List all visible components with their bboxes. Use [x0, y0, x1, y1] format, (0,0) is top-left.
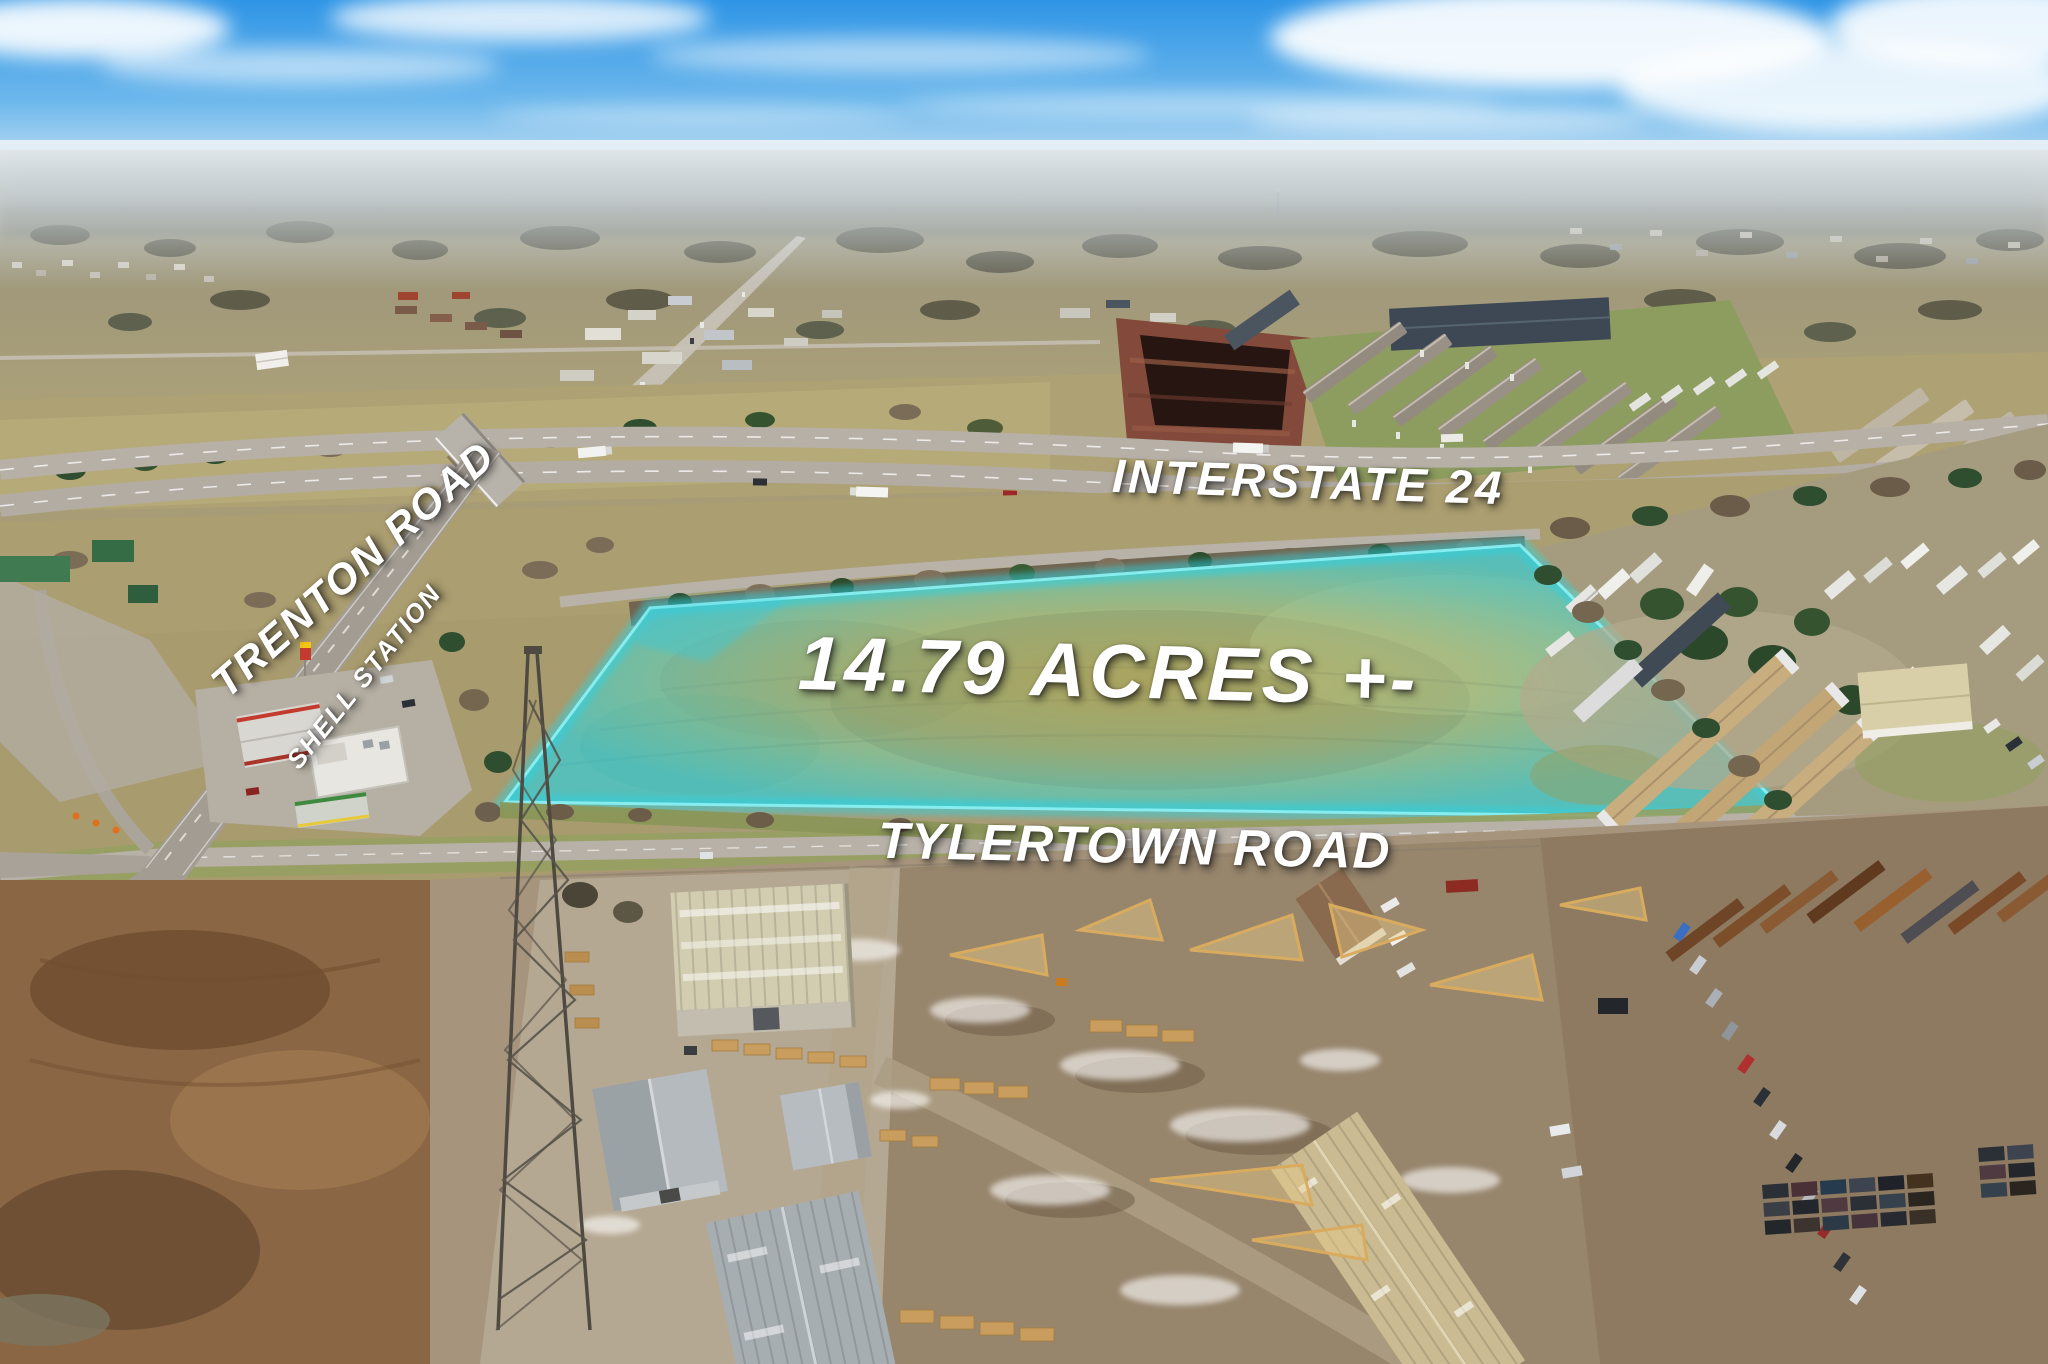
forklift — [1056, 978, 1067, 986]
storage-office-building — [1857, 663, 1972, 738]
acreage-label: 14.79 ACRES +- — [797, 626, 1420, 718]
warehouse-gray-gable — [592, 1069, 728, 1213]
lumber-yard — [430, 802, 2048, 1364]
interstate-24-label: INTERSTATE 24 — [1111, 452, 1505, 511]
horizon-haze — [0, 140, 2048, 290]
machinery — [684, 1046, 697, 1055]
tylertown-road-label: TYLERTOWN ROAD — [878, 815, 1392, 877]
aerial-listing-photo: TRENTON ROAD SHELL STATION INTERSTATE 24… — [0, 0, 2048, 1364]
warehouse-main — [670, 883, 853, 1036]
shed-small — [780, 1082, 872, 1171]
construction-dirt-site — [1116, 318, 1312, 456]
dirt-field — [0, 880, 500, 1364]
